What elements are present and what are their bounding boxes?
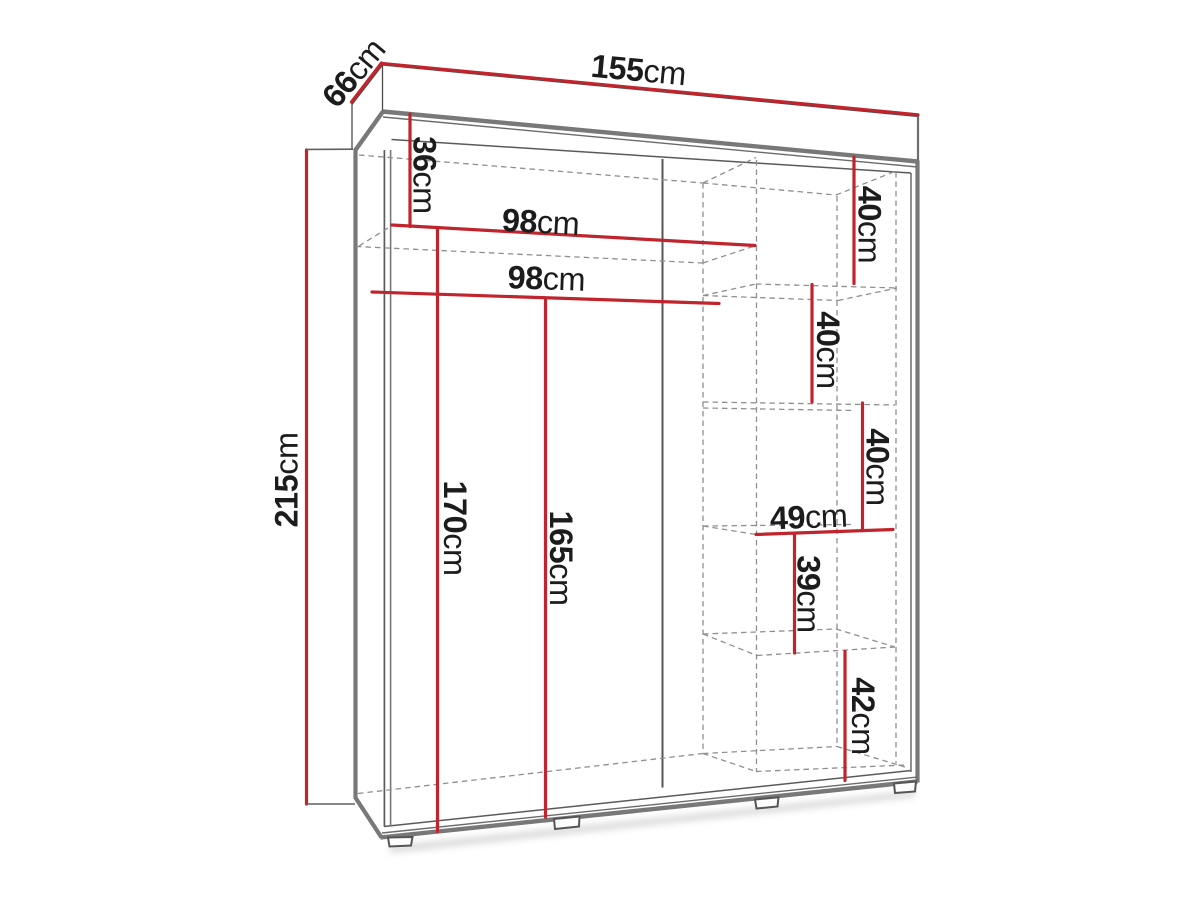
svg-text:215cm: 215cm	[269, 432, 305, 527]
svg-text:40cm: 40cm	[860, 428, 896, 505]
svg-text:98cm: 98cm	[501, 202, 580, 242]
svg-text:36cm: 36cm	[407, 136, 443, 213]
svg-text:170cm: 170cm	[437, 480, 473, 575]
svg-text:49cm: 49cm	[769, 498, 848, 537]
svg-text:39cm: 39cm	[791, 555, 827, 632]
svg-text:40cm: 40cm	[852, 186, 888, 263]
svg-text:40cm: 40cm	[810, 311, 846, 388]
svg-text:165cm: 165cm	[543, 510, 579, 605]
svg-text:42cm: 42cm	[845, 677, 881, 754]
svg-text:98cm: 98cm	[507, 259, 586, 298]
